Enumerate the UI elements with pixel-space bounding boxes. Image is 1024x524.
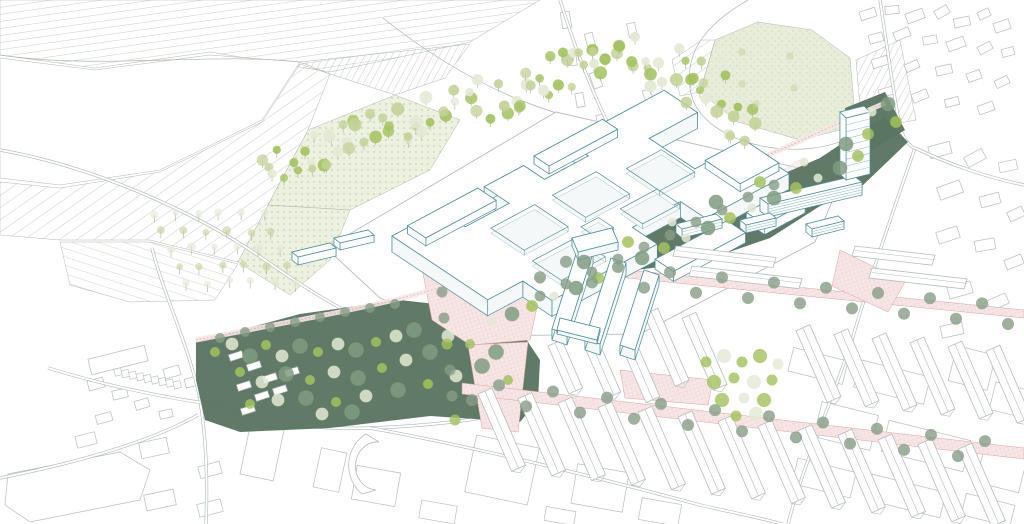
tree	[924, 292, 936, 304]
orchard-tree	[588, 47, 597, 56]
orchard-tree	[558, 47, 568, 57]
tree	[577, 255, 592, 270]
tree	[701, 221, 716, 236]
orchard-tree	[486, 114, 496, 124]
orchard-tree	[613, 40, 624, 51]
orchard-tree	[538, 85, 549, 96]
tree	[762, 42, 770, 50]
orchard-tree	[234, 243, 242, 251]
terrace-house	[114, 368, 122, 376]
tree	[736, 425, 748, 437]
orchard-tree	[291, 280, 299, 288]
tree	[709, 404, 721, 416]
tree	[344, 404, 360, 420]
orchard-tree	[280, 174, 288, 182]
tree	[628, 413, 640, 425]
masterplan-drawing	[0, 0, 1024, 524]
tree	[560, 256, 572, 268]
tree	[601, 392, 613, 404]
tree	[763, 410, 775, 422]
tree	[210, 347, 220, 357]
tree	[292, 338, 308, 354]
tree	[682, 419, 694, 431]
tree	[639, 242, 650, 253]
orchard-tree	[696, 86, 704, 94]
orchard-tree	[589, 59, 599, 69]
tree	[716, 56, 724, 64]
orchard-tree	[448, 85, 459, 96]
tree	[868, 108, 877, 117]
tree	[505, 307, 520, 322]
tree	[844, 438, 856, 450]
orchard-tree	[308, 165, 316, 173]
orchard-tree	[535, 74, 544, 83]
tree	[764, 74, 772, 82]
orchard-tree	[700, 93, 711, 104]
orchard-tree	[472, 74, 483, 85]
orchard-tree	[680, 97, 692, 109]
orchard-tree	[211, 243, 217, 249]
orchard-tree	[674, 43, 685, 54]
tree	[488, 318, 497, 327]
orchard-tree	[257, 154, 269, 166]
tree	[731, 411, 742, 422]
tree	[422, 344, 438, 360]
orchard-tree	[204, 281, 211, 288]
orchard-tree	[599, 53, 611, 65]
orchard-tree	[322, 160, 332, 170]
tree	[691, 217, 702, 228]
orchard-tree	[343, 142, 355, 154]
orchard-tree	[470, 105, 482, 117]
tree	[717, 349, 731, 363]
tree	[256, 376, 269, 389]
tree	[752, 100, 760, 108]
tree	[265, 322, 275, 332]
orchard-tree	[688, 73, 699, 84]
orchard-tree	[182, 279, 190, 287]
orchard-tree	[283, 262, 291, 270]
orchard-tree	[333, 147, 343, 157]
tree	[814, 174, 823, 183]
orchard-tree	[725, 131, 735, 141]
tree	[950, 313, 962, 325]
orchard-tree	[740, 136, 750, 146]
terrace-house	[166, 379, 174, 387]
tree	[586, 276, 598, 288]
tree	[465, 339, 475, 349]
orchard-tree	[681, 57, 689, 65]
tree	[724, 212, 736, 224]
tree	[738, 80, 746, 88]
orchard-tree	[574, 48, 583, 57]
orchard-tree	[339, 120, 348, 129]
orchard-tree	[310, 131, 319, 140]
tree	[753, 349, 767, 363]
tree	[290, 317, 300, 327]
orchard-tree	[426, 118, 435, 127]
orchard-tree	[273, 146, 281, 154]
orchard-tree	[261, 208, 269, 216]
tree	[682, 234, 691, 243]
tree	[767, 375, 778, 386]
tree	[520, 400, 532, 412]
terrace-house	[129, 371, 137, 379]
tree	[240, 327, 250, 337]
tree	[261, 340, 271, 350]
tree	[846, 302, 858, 314]
orchard-tree	[733, 103, 742, 112]
tree	[773, 359, 784, 370]
orchard-tree	[749, 117, 762, 130]
tree	[377, 363, 387, 373]
tree	[717, 205, 728, 216]
orchard-tree	[167, 246, 174, 253]
orchard-tree	[247, 277, 254, 284]
orchard-tree	[248, 229, 256, 237]
tree	[574, 407, 586, 419]
tree	[690, 287, 702, 299]
tree	[790, 182, 802, 194]
tree	[442, 339, 453, 350]
tree	[561, 279, 572, 290]
tree	[742, 292, 754, 304]
tree	[328, 366, 341, 379]
tree	[748, 204, 757, 213]
orchard-tree	[419, 91, 432, 104]
orchard-tree	[179, 226, 187, 234]
tree	[872, 287, 884, 299]
tree	[808, 66, 816, 74]
tree	[242, 348, 258, 364]
orchard-tree	[289, 158, 298, 167]
orchard-tree	[568, 83, 576, 91]
tree	[587, 267, 598, 278]
tree	[226, 338, 239, 351]
tree	[952, 450, 964, 462]
tree	[450, 415, 461, 426]
tree	[390, 299, 400, 309]
orchard-tree	[262, 262, 271, 271]
tree	[738, 48, 746, 56]
tree	[447, 391, 458, 402]
tree	[215, 333, 225, 343]
orchard-tree	[172, 209, 178, 215]
tree	[360, 390, 373, 403]
tree	[979, 435, 991, 447]
tree	[315, 312, 325, 322]
tree	[664, 266, 676, 278]
orchard-tree	[223, 226, 232, 235]
tree	[298, 390, 314, 406]
tree	[800, 158, 809, 167]
tree	[272, 394, 285, 407]
tree	[786, 52, 794, 60]
tree	[820, 282, 832, 294]
tree	[881, 97, 896, 112]
terrace-house	[173, 381, 181, 389]
orchard-tree	[157, 226, 165, 234]
orchard-tree	[494, 79, 503, 88]
tree	[276, 350, 289, 363]
orchard-tree	[653, 57, 664, 68]
tree	[423, 379, 433, 389]
tree	[437, 287, 448, 298]
orchard-tree	[594, 66, 607, 79]
masterplan-canvas	[0, 0, 1024, 524]
orchard-tree	[697, 56, 706, 65]
orchard-tree	[327, 133, 336, 142]
tree	[278, 366, 294, 382]
orchard-tree	[410, 116, 423, 129]
terrace-house	[158, 377, 166, 385]
tree	[1002, 318, 1014, 330]
orchard-tree	[438, 106, 448, 116]
orchard-tree	[526, 80, 536, 90]
tree	[493, 379, 505, 391]
terrace-house	[143, 374, 151, 382]
tree	[754, 176, 766, 188]
tree	[365, 303, 375, 313]
orchard-tree	[300, 146, 310, 156]
orchard-tree	[195, 210, 202, 217]
tree	[658, 242, 670, 254]
tree	[757, 393, 771, 407]
tree	[747, 375, 761, 389]
orchard-tree	[226, 277, 233, 284]
orchard-tree	[294, 166, 302, 174]
orchard-tree	[254, 244, 263, 253]
orchard-tree	[520, 68, 531, 79]
orchard-tree	[657, 77, 667, 87]
orchard-tree	[348, 118, 361, 131]
tree	[665, 230, 676, 241]
orchard-tree	[626, 56, 637, 67]
tree	[535, 291, 546, 302]
tree	[701, 357, 712, 368]
tree	[488, 344, 504, 360]
tree	[852, 150, 864, 162]
tree	[445, 365, 456, 376]
tree	[790, 84, 798, 92]
tree	[400, 354, 413, 367]
tree	[526, 300, 538, 312]
tree	[635, 251, 650, 266]
orchard-tree	[514, 100, 526, 112]
tree	[466, 394, 478, 406]
terrace-house	[121, 369, 129, 377]
tree	[390, 382, 406, 398]
tree	[612, 261, 624, 273]
orchard-tree	[365, 109, 375, 119]
orchard-tree	[465, 88, 473, 96]
terrace-house	[151, 376, 159, 384]
tree	[313, 347, 323, 357]
tree	[976, 297, 988, 309]
orchard-tree	[187, 242, 196, 251]
tree	[547, 385, 559, 397]
tree	[439, 313, 450, 324]
tree	[668, 218, 677, 227]
tree	[862, 128, 874, 140]
tree	[707, 375, 721, 389]
tree	[768, 277, 780, 289]
tree	[550, 292, 559, 301]
tree	[332, 338, 345, 351]
orchard-tree	[641, 57, 650, 66]
tree	[305, 375, 315, 385]
tree	[245, 399, 255, 409]
tree	[622, 236, 634, 248]
orchard-tree	[383, 125, 395, 137]
existing-house	[885, 5, 900, 14]
orchard-tree	[391, 102, 404, 115]
orchard-tree	[644, 68, 657, 81]
tree	[925, 429, 937, 441]
orchard-tree	[553, 79, 564, 90]
tree	[839, 137, 854, 152]
tree	[817, 417, 829, 429]
tree	[898, 444, 910, 456]
orchard-tree	[267, 228, 275, 236]
orchard-tree	[670, 73, 683, 86]
orchard-tree	[219, 261, 226, 268]
orchard-tree	[404, 132, 413, 141]
orchard-tree	[644, 80, 656, 92]
tree	[739, 393, 750, 404]
tree	[371, 337, 381, 347]
orchard-tree	[499, 100, 510, 111]
tree	[790, 431, 802, 443]
tree	[390, 330, 403, 343]
tree	[890, 116, 902, 128]
tree	[767, 191, 782, 206]
tree	[348, 342, 364, 358]
tree	[316, 408, 329, 421]
orchard-tree	[579, 60, 588, 69]
orchard-tree	[150, 211, 158, 219]
tree	[749, 407, 763, 421]
tree	[898, 308, 910, 320]
tree	[638, 282, 650, 294]
orchard-tree	[545, 51, 555, 61]
terrace-house	[136, 373, 144, 381]
tree	[729, 373, 740, 384]
orchard-tree	[450, 97, 459, 106]
orchard-tree	[271, 278, 278, 285]
orchard-tree	[369, 131, 382, 144]
tree	[406, 322, 422, 338]
tree	[474, 358, 490, 374]
orchard-tree	[378, 113, 387, 122]
orchard-tree	[214, 209, 222, 217]
orchard-tree	[721, 70, 731, 80]
tree	[655, 398, 667, 410]
orchard-tree	[195, 263, 202, 270]
tree	[534, 271, 546, 283]
orchard-tree	[630, 32, 640, 42]
orchard-tree	[240, 261, 247, 268]
tree	[331, 397, 341, 407]
tree	[769, 180, 780, 191]
orchard-tree	[359, 138, 368, 147]
orchard-tree	[267, 169, 276, 178]
tree	[716, 271, 728, 283]
tree	[794, 297, 806, 309]
tree	[235, 367, 245, 377]
orchard-tree	[276, 245, 284, 253]
tree	[816, 92, 824, 100]
tree	[871, 423, 883, 435]
orchard-tree	[176, 263, 183, 270]
tree	[340, 307, 350, 317]
tree	[737, 357, 748, 368]
tree	[743, 192, 754, 203]
orchard-tree	[710, 105, 723, 118]
orchard-tree	[237, 208, 245, 216]
orchard-tree	[203, 229, 210, 236]
tree	[350, 370, 366, 386]
tree	[833, 161, 848, 176]
